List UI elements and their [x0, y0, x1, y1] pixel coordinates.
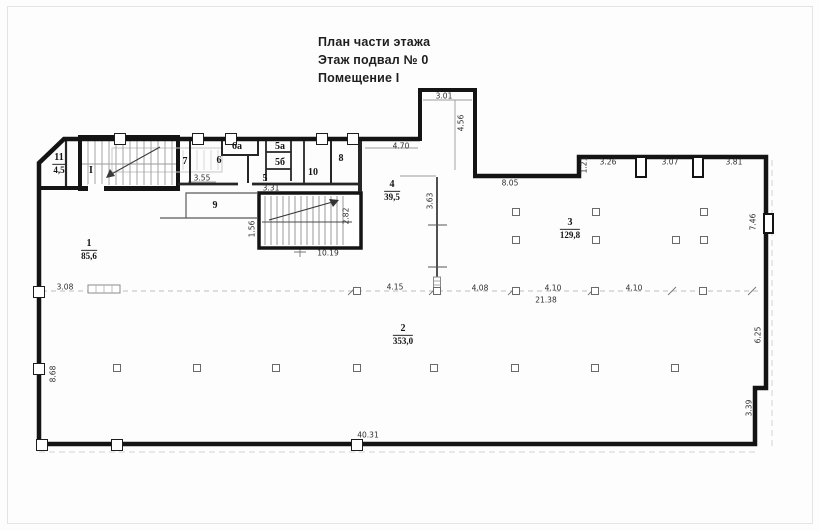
room-label-I: I	[87, 166, 95, 177]
scanned-floorplan-page: План части этажа Этаж подвал № 0 Помещен…	[0, 0, 820, 531]
wall-column-marker	[351, 439, 363, 451]
room-label-7: 7	[181, 157, 190, 168]
column-marker	[430, 364, 438, 372]
column-marker	[671, 364, 679, 372]
room-number: I	[87, 166, 95, 177]
column-marker	[592, 208, 600, 216]
wall-opening	[88, 285, 120, 293]
room-area: 4,5	[52, 164, 65, 175]
column-marker	[353, 287, 361, 295]
dimension-label: 3.26	[600, 158, 617, 167]
room-number: 4	[384, 180, 400, 192]
room-number: 6а	[230, 142, 244, 153]
dimension-label: 4.56	[457, 115, 466, 132]
dashed-axis-lines	[39, 160, 772, 452]
dimension-label: 4.70	[393, 142, 410, 151]
column-marker	[700, 208, 708, 216]
wall-column-marker	[36, 439, 48, 451]
room-label-1: 185,6	[81, 239, 97, 261]
dimension-label: 40.31	[357, 431, 378, 440]
column-marker	[699, 287, 707, 295]
room-label-5б: 5б	[273, 158, 287, 169]
dimension-label: 4.10	[626, 284, 643, 293]
dimension-label: 2.82	[342, 208, 351, 225]
dimension-label: 7.46	[749, 214, 758, 231]
column-marker	[591, 364, 599, 372]
room-area: 85,6	[81, 250, 97, 261]
dimension-label: 6.25	[754, 327, 763, 344]
dimension-label: 10.19	[317, 249, 338, 258]
room-label-3: 3129,8	[560, 218, 580, 240]
room-number: 1	[81, 239, 97, 251]
room-area: 39,5	[384, 191, 400, 202]
column-marker	[672, 236, 680, 244]
dimension-label: 4.15	[387, 283, 404, 292]
dimension-label: 3.31	[263, 184, 280, 193]
column-marker	[512, 287, 520, 295]
room-area: 353,0	[393, 335, 413, 346]
column-marker	[512, 236, 520, 244]
column-marker	[193, 364, 201, 372]
dimension-label: 4.10	[545, 284, 562, 293]
dimension-label: 3.01	[436, 92, 453, 101]
wall-column-marker	[316, 133, 328, 145]
room-number: 11	[52, 153, 65, 165]
dimension-label: 1.56	[248, 221, 257, 238]
room-label-6а: 6а	[230, 142, 244, 153]
room-label-5а: 5а	[273, 142, 287, 153]
room-number: 5б	[273, 158, 287, 169]
dimension-label: 3.08	[57, 283, 74, 292]
room-label-10: 10	[306, 168, 320, 179]
column-marker	[591, 287, 599, 295]
column-marker	[113, 364, 121, 372]
partition-room4-room3	[400, 176, 447, 290]
column-marker	[353, 364, 361, 372]
room-label-8: 8	[337, 154, 346, 165]
dimension-label: 3.55	[194, 174, 211, 183]
dimension-label: 8.05	[502, 179, 519, 188]
room-label-6: 6	[215, 156, 224, 167]
column-marker	[272, 364, 280, 372]
room-area: 129,8	[560, 229, 580, 240]
dimension-label: 3.81	[726, 158, 743, 167]
dimension-label: 1.21	[580, 157, 589, 174]
room-label-11: 114,5	[52, 153, 65, 175]
room-number: 7	[181, 157, 190, 168]
column-marker	[512, 208, 520, 216]
room-label-4: 439,5	[384, 180, 400, 202]
wall-column-marker	[347, 133, 359, 145]
room-number: 3	[560, 218, 580, 230]
wall-column-marker	[33, 363, 45, 375]
dimension-label: 21.38	[535, 296, 556, 305]
wall-column-marker	[33, 286, 45, 298]
column-marker	[592, 236, 600, 244]
dimension-label: 3.39	[745, 400, 754, 417]
room-label-2: 2353,0	[393, 324, 413, 346]
door-gap	[88, 184, 104, 192]
wall-column-marker	[192, 133, 204, 145]
room-number: 6	[215, 156, 224, 167]
wall-column-marker	[114, 133, 126, 145]
dimension-label: 4.08	[472, 284, 489, 293]
right-wall-niche	[764, 214, 773, 233]
dimension-label: 8.68	[49, 366, 58, 383]
dimension-label: 3.07	[662, 158, 679, 167]
dimension-label: 3.63	[426, 193, 435, 210]
floorplan-drawing	[0, 0, 820, 531]
column-marker	[700, 236, 708, 244]
room-number: 5а	[273, 142, 287, 153]
wall-column-marker	[111, 439, 123, 451]
room9-partition	[160, 193, 258, 218]
column-marker	[511, 364, 519, 372]
room-label-9: 9	[211, 201, 220, 212]
room-number: 10	[306, 168, 320, 179]
room-number: 2	[393, 324, 413, 336]
room-number: 8	[337, 154, 346, 165]
room-number: 9	[211, 201, 220, 212]
column-marker	[433, 287, 441, 295]
